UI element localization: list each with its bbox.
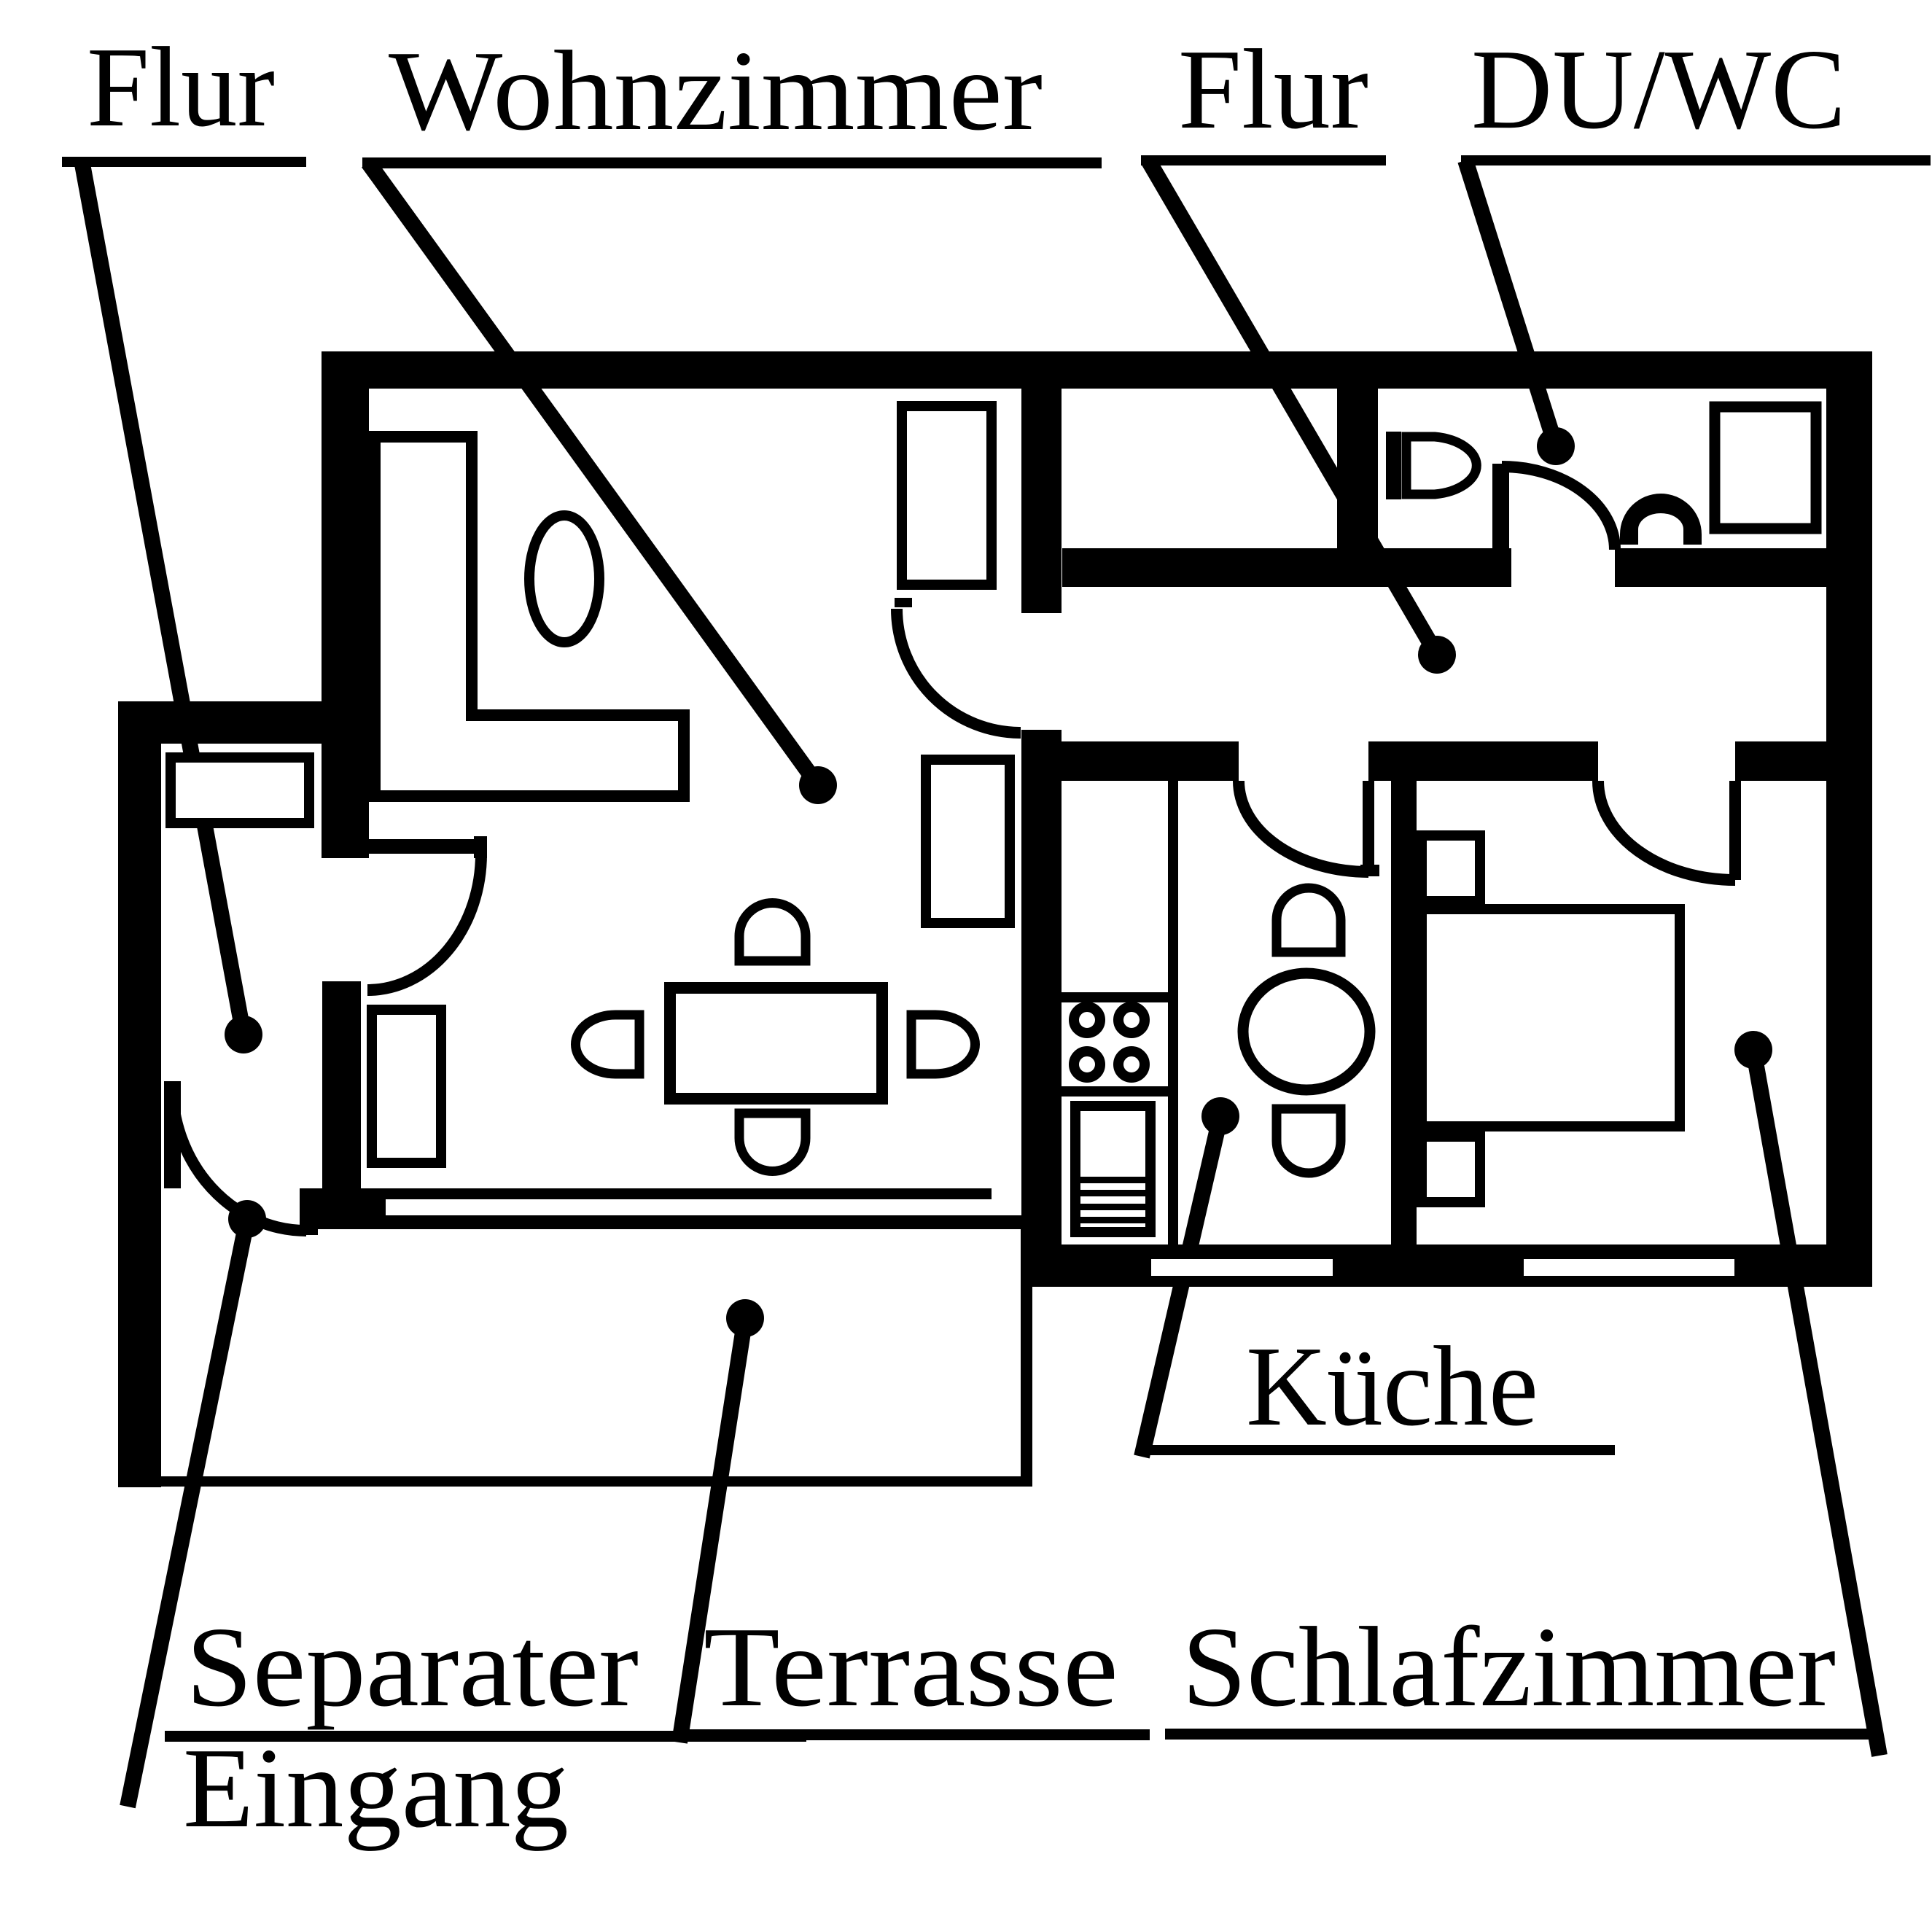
svg-text:Separater: Separater (186, 1603, 639, 1730)
svg-text:Küche: Küche (1246, 1323, 1538, 1449)
svg-text:Flur: Flur (1178, 26, 1368, 152)
svg-text:DU/WC: DU/WC (1471, 26, 1846, 152)
svg-text:Flur: Flur (87, 23, 275, 150)
svg-text:Eingang: Eingang (183, 1724, 569, 1851)
svg-text:Schlafzimmer: Schlafzimmer (1182, 1603, 1836, 1730)
svg-text:Wohnzimmer: Wohnzimmer (389, 27, 1043, 154)
svg-text:Terrasse: Terrasse (704, 1603, 1118, 1730)
